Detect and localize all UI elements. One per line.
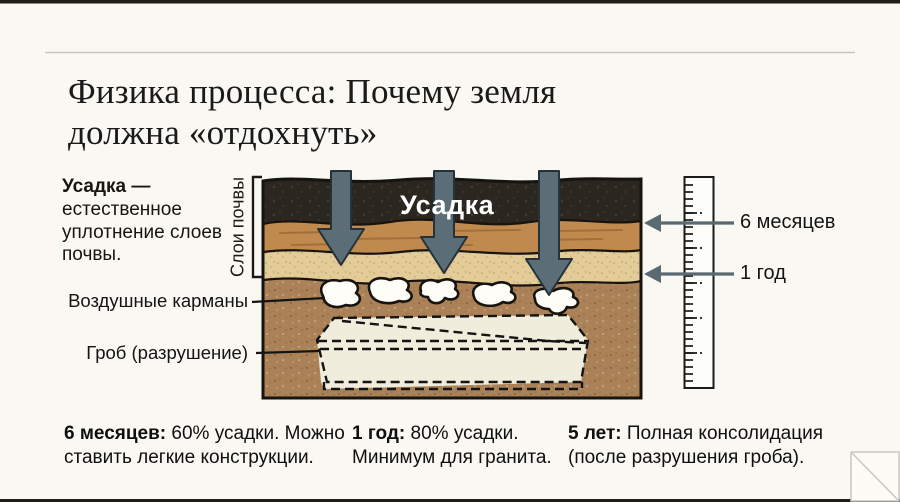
timeline-term: 1 год: (352, 423, 405, 444)
layers-bracket (253, 177, 262, 277)
top-bar (0, 0, 900, 4)
slide-title: Физика процесса: Почему земля должна «от… (68, 72, 556, 153)
timeline-term: 6 месяцев: (64, 423, 166, 444)
left-arrowhead-icon (644, 214, 661, 232)
timeline-term: 5 лет: (568, 423, 622, 444)
coffin-label: Гроб (разрушение) (52, 342, 248, 363)
air-pocket (321, 280, 360, 307)
definition-note: Усадка — естественное уплотнение слоев п… (62, 176, 252, 267)
timeline-item-5-years: 5 лет: Полная консолидация (после разруш… (568, 422, 878, 469)
definition-term: Усадка — (62, 176, 150, 197)
left-arrowhead-icon (644, 265, 661, 283)
shrinkage-label: Усадка (400, 190, 494, 221)
ruler-mark-6-months: 6 месяцев (740, 211, 835, 234)
definition-text: естественное уплотнение слоев почвы. (62, 199, 222, 266)
ruler-mark-1-year: 1 год (740, 262, 786, 285)
coffin (317, 315, 588, 389)
title-line-2: должна «отдохнуть» (68, 113, 556, 154)
timeline-item-1-year: 1 год: 80% усадки. Минимум для гранита. (352, 422, 580, 469)
soil-layers-axis-label: Слои почвы (226, 172, 250, 282)
air-pocket (369, 278, 412, 303)
title-line-1: Физика процесса: Почему земля (68, 72, 556, 113)
pockets-label: Воздушные карманы (52, 290, 248, 311)
slide: Физика процесса: Почему земля должна «от… (0, 0, 900, 502)
air-pocket (473, 282, 515, 306)
ruler (685, 177, 714, 388)
timeline-item-6-months: 6 месяцев: 60% усадки. Можно ставить лег… (64, 422, 364, 469)
